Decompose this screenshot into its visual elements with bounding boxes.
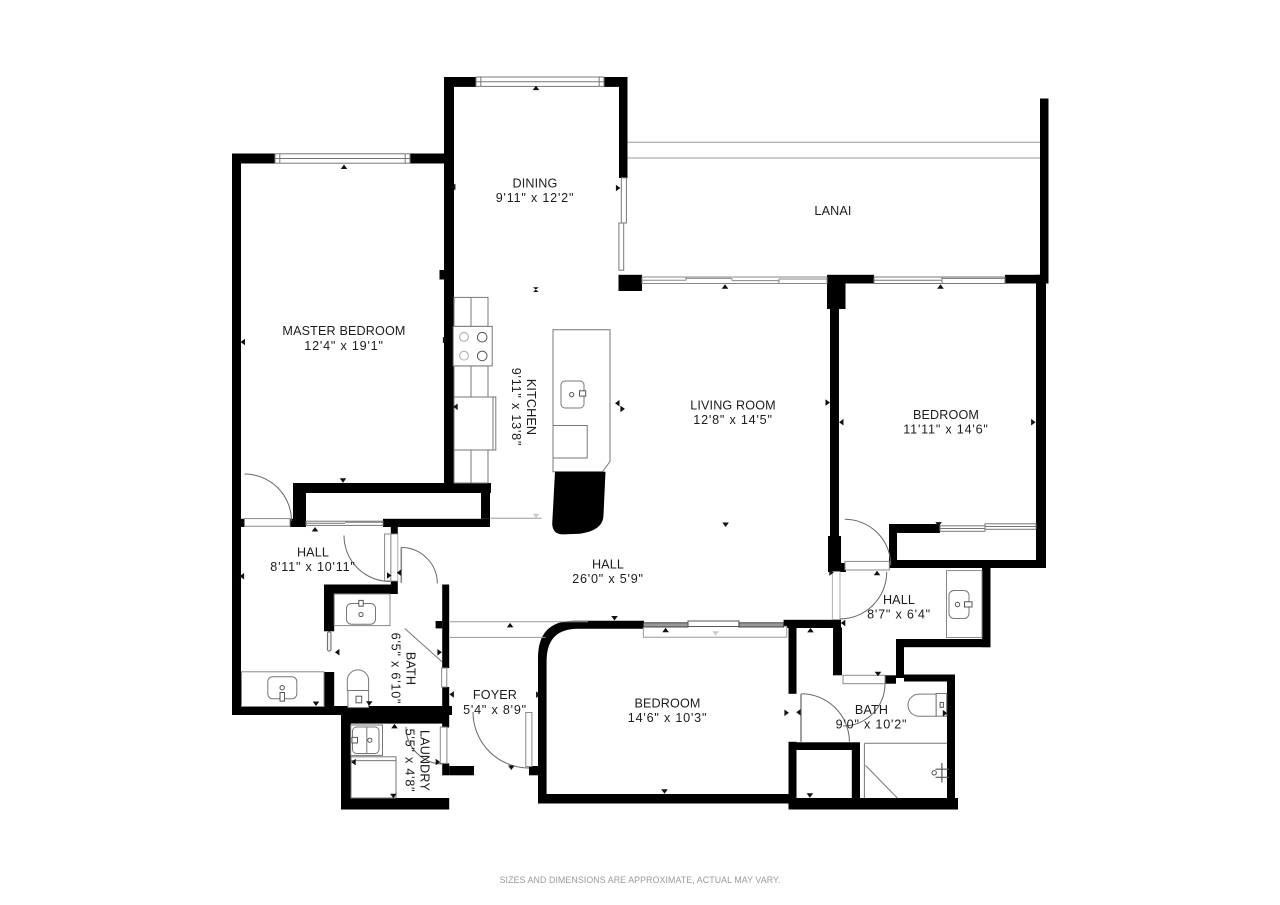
- svg-text:SIZES AND DIMENSIONS ARE APPRO: SIZES AND DIMENSIONS ARE APPROXIMATE, AC…: [500, 875, 781, 885]
- svg-text:BEDROOM: BEDROOM: [913, 408, 979, 422]
- svg-text:9'11" x 12'2": 9'11" x 12'2": [496, 191, 575, 205]
- svg-text:LIVING ROOM: LIVING ROOM: [690, 398, 776, 412]
- svg-text:HALL: HALL: [297, 546, 329, 560]
- svg-text:LAUNDRY: LAUNDRY: [417, 730, 431, 791]
- svg-text:8'11" x 10'11": 8'11" x 10'11": [270, 560, 355, 574]
- svg-text:9'11" x 13'8": 9'11" x 13'8": [509, 368, 523, 447]
- svg-text:BEDROOM: BEDROOM: [634, 697, 700, 711]
- svg-text:BATH: BATH: [403, 652, 417, 685]
- svg-text:KITCHEN: KITCHEN: [524, 379, 538, 435]
- svg-text:11'11" x 14'6": 11'11" x 14'6": [903, 423, 988, 437]
- svg-text:9'0" x 10'2": 9'0" x 10'2": [836, 718, 908, 732]
- svg-text:12'4" x 19'1": 12'4" x 19'1": [304, 339, 383, 353]
- svg-text:26'0" x 5'9": 26'0" x 5'9": [572, 572, 644, 586]
- svg-text:5'4" x 8'9": 5'4" x 8'9": [463, 703, 527, 717]
- svg-text:HALL: HALL: [883, 593, 915, 607]
- svg-text:DINING: DINING: [513, 177, 558, 191]
- svg-text:MASTER BEDROOM: MASTER BEDROOM: [282, 324, 405, 338]
- svg-text:BATH: BATH: [855, 703, 888, 717]
- svg-text:6'5" x 6'10": 6'5" x 6'10": [389, 633, 403, 705]
- svg-text:8'7" x 6'4": 8'7" x 6'4": [867, 608, 931, 622]
- svg-text:LANAI: LANAI: [814, 204, 851, 218]
- svg-text:12'8" x 14'5": 12'8" x 14'5": [693, 413, 772, 427]
- svg-text:14'6" x 10'3": 14'6" x 10'3": [628, 711, 707, 725]
- svg-text:5'5" x 4'8": 5'5" x 4'8": [403, 729, 417, 793]
- svg-text:FOYER: FOYER: [473, 688, 517, 702]
- svg-text:HALL: HALL: [592, 557, 624, 571]
